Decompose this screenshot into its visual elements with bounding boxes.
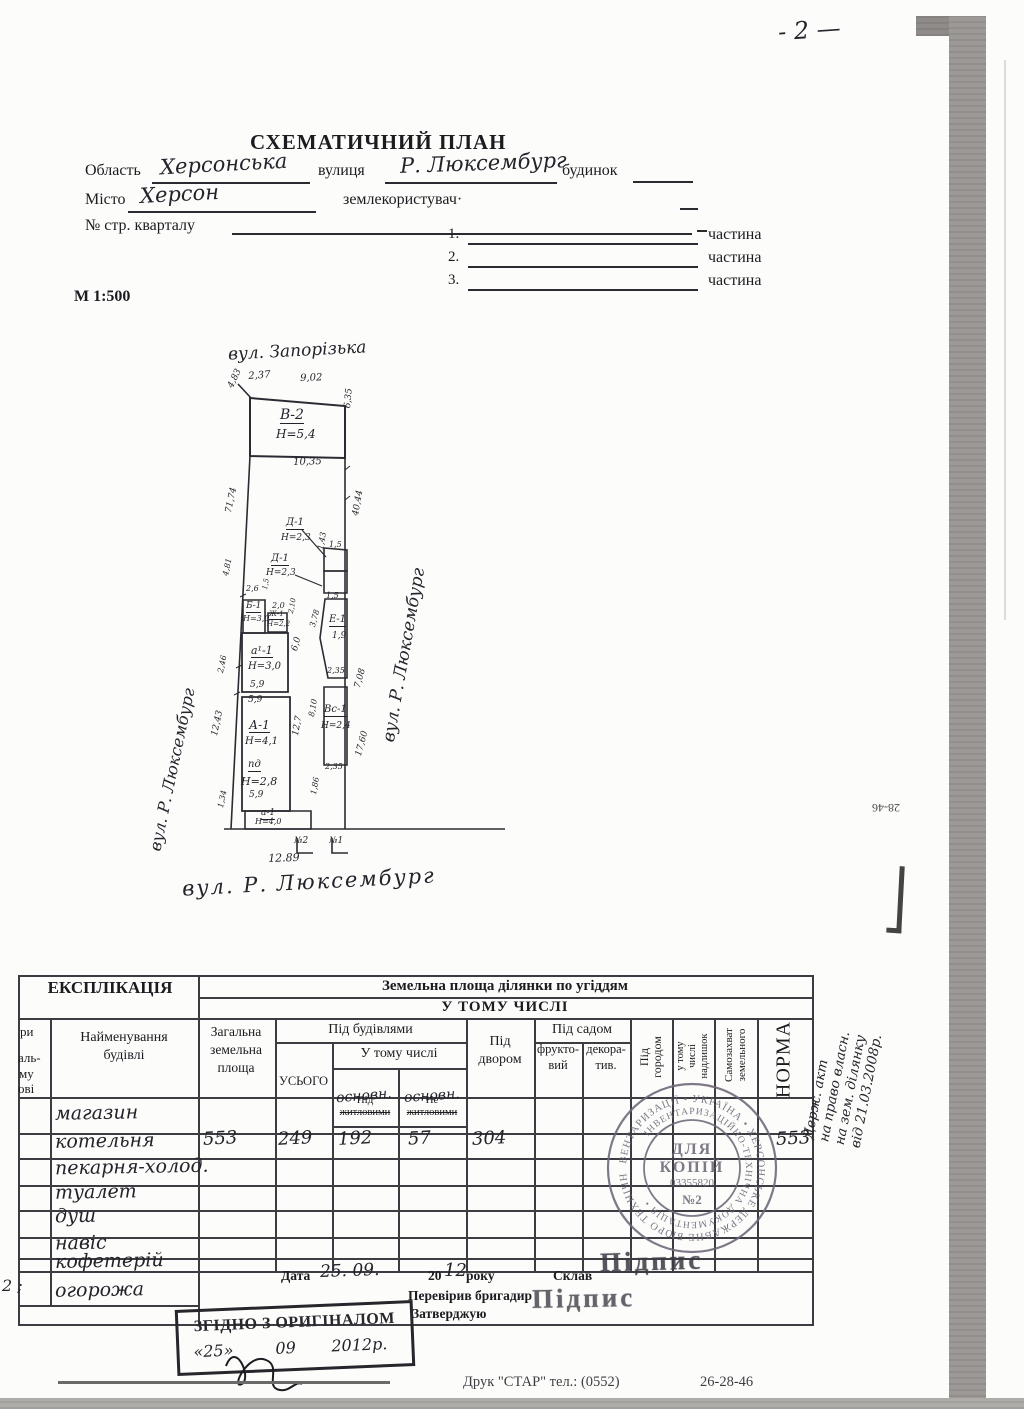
building-d1a-outline xyxy=(324,548,347,571)
printer-phone: 26-28-46 xyxy=(700,1374,753,1391)
plan-dimension-label: 5,9 xyxy=(248,696,262,705)
year-handwritten: 12 xyxy=(444,1260,467,1281)
year-print: 20 xyxy=(428,1268,442,1284)
street-label: вулиця xyxy=(318,162,365,180)
building-d1b-outline xyxy=(324,571,347,593)
row-value-nezh: 57 xyxy=(407,1127,431,1149)
edge-dark-mark xyxy=(886,866,904,934)
part2-label: частина xyxy=(708,249,761,267)
table-line-v xyxy=(332,1042,334,1271)
scan-band-right xyxy=(949,16,986,1409)
col-dekor-line2: тив. xyxy=(584,1058,628,1073)
plan-dimension-label: 5,9 xyxy=(250,681,264,690)
misto-label: Місто xyxy=(85,191,126,209)
plan-building-label: пд xyxy=(248,760,261,772)
plan-dimension-label: Н=2,2 xyxy=(267,621,290,628)
table-line-v xyxy=(582,1042,584,1271)
dlya-kopiy-round-stamp: ІНВЕНТАРИЗАЦІЇ • УКРАЇНА • ХЕРСОНСЬКЕ ДЕ… xyxy=(604,1080,780,1256)
plan-building-label: Д-1 xyxy=(286,518,304,530)
kvartal-underline xyxy=(232,233,692,235)
col-total-line2: земельна xyxy=(200,1042,272,1058)
table-title: Земельна площа ділянки по угіддям xyxy=(200,978,810,995)
zgidno-stamp-year: 2012р. xyxy=(331,1334,388,1355)
part2-number: 2. xyxy=(448,249,459,266)
plan-dimension-label: Н=3,0 xyxy=(248,662,281,672)
part3-label: частина xyxy=(708,272,761,290)
plan-dimension-label: 5,9 xyxy=(249,791,263,800)
table-line-h xyxy=(18,1305,198,1307)
col-frukt-line2: вий xyxy=(536,1058,580,1073)
zatverdzhuyu-label: Затверджую xyxy=(412,1306,486,1322)
col-letters-frag-2: аль- xyxy=(18,1050,41,1066)
plan-dimension-label: 2,35 xyxy=(325,763,343,771)
plan-dimension-label: Н=2,3 xyxy=(281,534,311,543)
misto-value: Херсон xyxy=(139,180,219,208)
plan-building-label: В-2 xyxy=(280,408,304,424)
signature-squiggle xyxy=(218,1338,313,1400)
leader-d1b xyxy=(295,575,322,586)
row-value-usogo: 249 xyxy=(277,1127,312,1150)
margin-note: Держ. акт на право власн. на зем. ділянк… xyxy=(800,951,899,1150)
col-zhytl-line2: житловими xyxy=(334,1107,396,1118)
edge-bleed-note: 28-46 xyxy=(872,800,900,815)
plan-dimension-label: Н=2,4 xyxy=(321,722,351,731)
footer-stray-line xyxy=(58,1381,390,1384)
plan-dimension-label: 1,5 xyxy=(326,592,339,600)
zgidno-stamp-text: ЗГІДНО З ОРИГІНАЛОМ xyxy=(178,1309,411,1337)
plan-dimension-label: 6,35 xyxy=(344,388,355,409)
printer-credit: Друк "СТАР" тел.: (0552) xyxy=(463,1374,620,1391)
col-nezhytl-line2: житловими xyxy=(400,1107,464,1118)
plan-dimension-label: Н=4,0 xyxy=(255,818,281,826)
budynok-underline xyxy=(633,181,693,183)
part3-number: 3. xyxy=(448,272,459,289)
plan-building-label: Б-1 xyxy=(246,602,261,613)
scanned-document-page: - 2 — СХЕМАТИЧНИЙ ПЛАН Область Херсонськ… xyxy=(0,0,1024,1409)
plan-dimension-label: №2 xyxy=(294,837,308,846)
col-name-line2: будівлі xyxy=(52,1048,196,1064)
part1-label: частина xyxy=(708,226,761,244)
corner-tick xyxy=(238,384,251,398)
row-building-name: котельня xyxy=(55,1129,155,1153)
plan-dimension-label: 1,5 xyxy=(329,541,342,549)
part3-underline xyxy=(468,289,698,291)
plan-building-label: а¹-1 xyxy=(251,645,273,658)
sklav-label: Склав xyxy=(553,1268,592,1284)
row-building-name: магазин xyxy=(55,1101,138,1124)
oblast-label: Область xyxy=(85,162,141,180)
row-building-name: пекарня-холод. xyxy=(55,1155,209,1180)
col-utc: У тому числі xyxy=(334,1046,464,1062)
scan-band-bottom xyxy=(0,1398,1024,1409)
col-name-line1: Найменування xyxy=(52,1030,196,1046)
col-letters-frag-4: ові xyxy=(18,1081,34,1097)
table-line-v xyxy=(275,1018,277,1271)
table-line-h xyxy=(18,975,812,977)
kvartal-label: № стр. кварталу xyxy=(85,217,195,235)
year-suffix: року xyxy=(466,1268,495,1284)
col-letters-frag-1: ри xyxy=(20,1024,33,1040)
plan-dimension-label: Н=4,1 xyxy=(245,737,278,747)
col-under-buildings: Під будівлями xyxy=(277,1022,464,1038)
part1-number: 1. xyxy=(448,226,459,243)
plan-dimension-label: Н=2,3 xyxy=(266,569,296,578)
row-building-name: душ xyxy=(55,1205,96,1228)
round-stamp-line1: ДЛЯ xyxy=(672,1141,712,1158)
row-value-zh: 192 xyxy=(337,1127,372,1150)
plan-dimension-label: 2,6 xyxy=(246,585,259,593)
row-building-name: кофетерій xyxy=(55,1249,164,1273)
col-letters-frag-3: му xyxy=(19,1066,34,1082)
col-dekor-line1: декора- xyxy=(584,1042,628,1057)
oblast-value: Херсонська xyxy=(159,149,287,180)
col-total-line1: Загальна xyxy=(200,1024,272,1040)
col-sad: Під садом xyxy=(536,1022,628,1038)
col-usogo: УСЬОГО xyxy=(277,1074,330,1089)
row-letter: 2 ; xyxy=(2,1276,23,1295)
plan-building-label: Ж-1 xyxy=(269,611,284,620)
plan-dimension-label: 2,37 xyxy=(248,370,271,382)
misto-underline xyxy=(128,211,316,213)
row-value-total: 553 xyxy=(202,1127,237,1150)
round-stamp-line2: КОПІЙ xyxy=(660,1157,725,1176)
row-building-name: туалет xyxy=(55,1180,137,1203)
pereviryv-label: Перевірив бригадир xyxy=(408,1288,532,1304)
round-stamp-number: 03355820 xyxy=(670,1177,715,1189)
parcel-plan-drawing xyxy=(140,330,570,890)
round-stamp-line3: №2 xyxy=(682,1192,702,1207)
table-line-h xyxy=(18,1324,812,1326)
plan-dimension-label: Н=5,4 xyxy=(276,428,316,440)
explication-header: ЕКСПЛІКАЦІЯ xyxy=(30,978,190,998)
part1-underline xyxy=(468,243,698,245)
pidpys-stamp-2: Підпис xyxy=(532,1282,636,1315)
plan-dimension-label: 9,02 xyxy=(300,373,323,384)
plan-building-label: Д-1 xyxy=(271,554,289,566)
plan-dimension-label: №1 xyxy=(329,837,343,846)
row-building-name: огорожа xyxy=(55,1278,144,1302)
part2-underline xyxy=(468,266,698,268)
street-value: Р. Люксембург xyxy=(400,148,567,178)
plan-building-label: А-1 xyxy=(249,719,270,733)
landuser-underline-remnant xyxy=(680,208,698,210)
scale-label: М 1:500 xyxy=(74,288,130,306)
budynok-label: будинок xyxy=(562,162,618,180)
col-dvor-line1: Під xyxy=(468,1034,532,1050)
plan-dimension-label: Н=3,0 xyxy=(243,615,269,623)
plan-dimension-label: 2,35 xyxy=(327,667,345,675)
plan-dimension-label: 10,35 xyxy=(293,457,322,468)
page-number: - 2 — xyxy=(777,14,841,46)
kvartal-underline-dash xyxy=(697,230,707,232)
col-frukt-line1: фрукто- xyxy=(536,1042,580,1057)
plan-building-label: Е-1 xyxy=(329,615,346,627)
table-subtitle: У ТОМУ ЧИСЛІ xyxy=(200,999,810,1016)
col-dvor-line2: двором xyxy=(468,1052,532,1068)
plan-dimension-label: 2,0 xyxy=(272,602,285,610)
table-line-v xyxy=(812,975,814,1326)
plan-dimension-label: 12.89 xyxy=(268,852,300,864)
landuser-label: землекористувач· xyxy=(343,191,462,209)
date-handwritten: 25. 09. xyxy=(320,1260,380,1282)
date-label: Дата xyxy=(281,1268,310,1284)
scan-faint-line xyxy=(1004,60,1006,620)
plan-building-label: Вс-1 xyxy=(324,705,347,717)
plan-dimension-label: 1,9 xyxy=(332,632,346,641)
row-value-dvir: 304 xyxy=(471,1127,506,1150)
table-line-h xyxy=(275,1042,466,1044)
street-underline xyxy=(385,182,557,184)
plan-dimension-label: Н=2,8 xyxy=(241,776,277,787)
col-total-line3: площа xyxy=(200,1060,272,1076)
